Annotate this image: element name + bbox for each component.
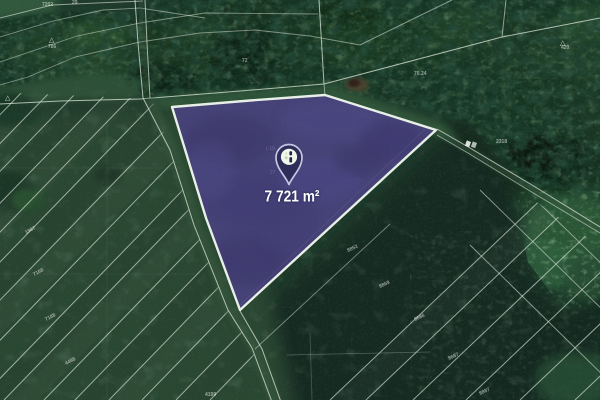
svg-text:△: △ [5, 95, 11, 102]
svg-text:786: 786 [48, 44, 57, 50]
svg-text:29: 29 [72, 0, 78, 6]
svg-text:7 721 m²: 7 721 m² [265, 189, 320, 206]
svg-text:27: 27 [270, 170, 276, 176]
svg-text:4199: 4199 [205, 392, 216, 398]
svg-text:△: △ [560, 40, 566, 47]
svg-text:7202: 7202 [42, 2, 53, 8]
svg-text:70.24: 70.24 [414, 71, 427, 77]
svg-text:△: △ [49, 37, 55, 44]
svg-text:(-19: (-19 [266, 146, 275, 152]
svg-text:2318: 2318 [496, 139, 507, 145]
svg-text:72: 72 [242, 58, 248, 64]
